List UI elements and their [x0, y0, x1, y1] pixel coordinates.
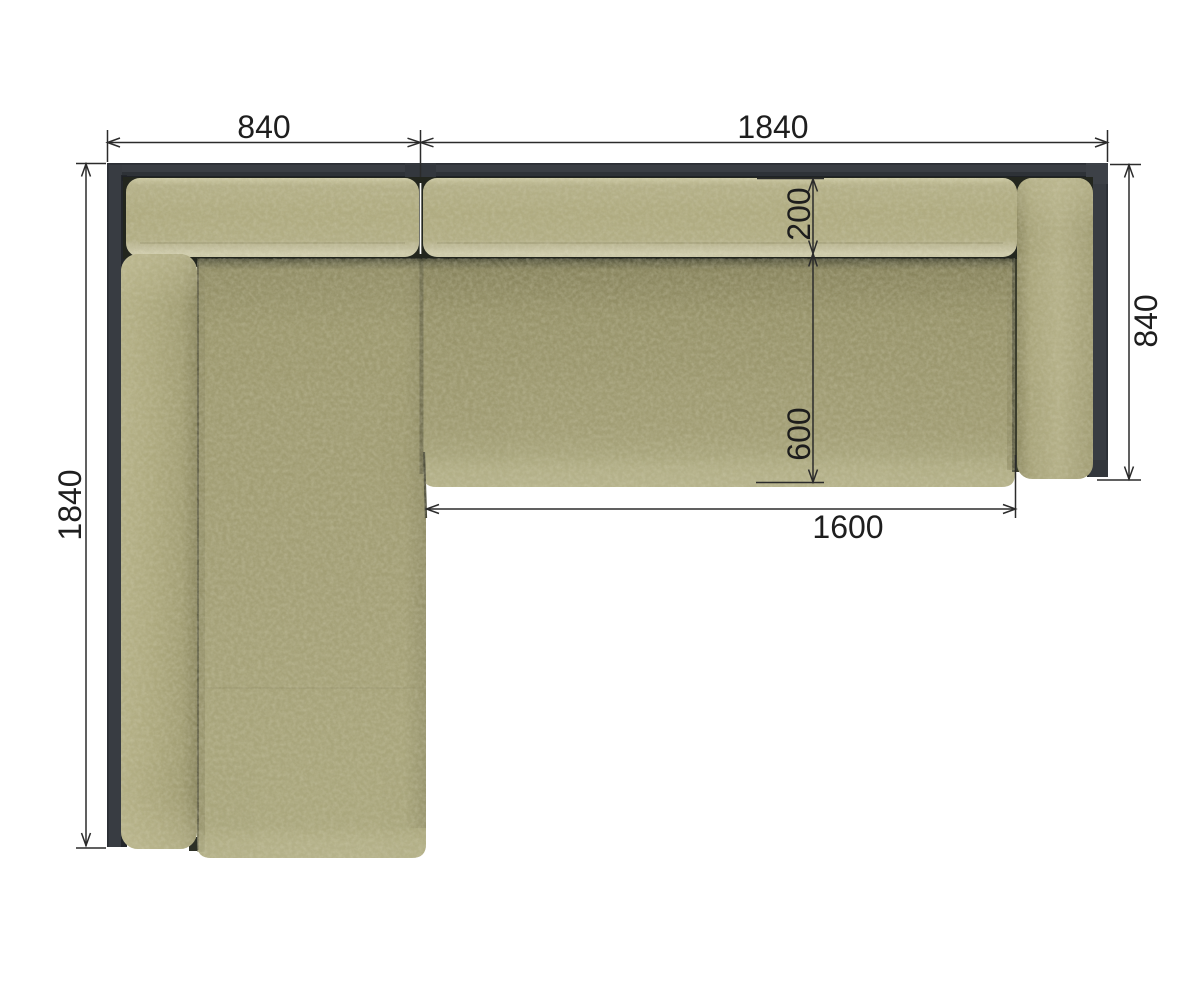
svg-text:600: 600 [781, 407, 817, 460]
svg-text:840: 840 [237, 109, 290, 145]
svg-text:1600: 1600 [812, 509, 883, 545]
svg-text:200: 200 [781, 187, 817, 240]
svg-text:1840: 1840 [737, 109, 808, 145]
svg-text:840: 840 [1128, 294, 1164, 347]
svg-text:1840: 1840 [52, 469, 88, 540]
